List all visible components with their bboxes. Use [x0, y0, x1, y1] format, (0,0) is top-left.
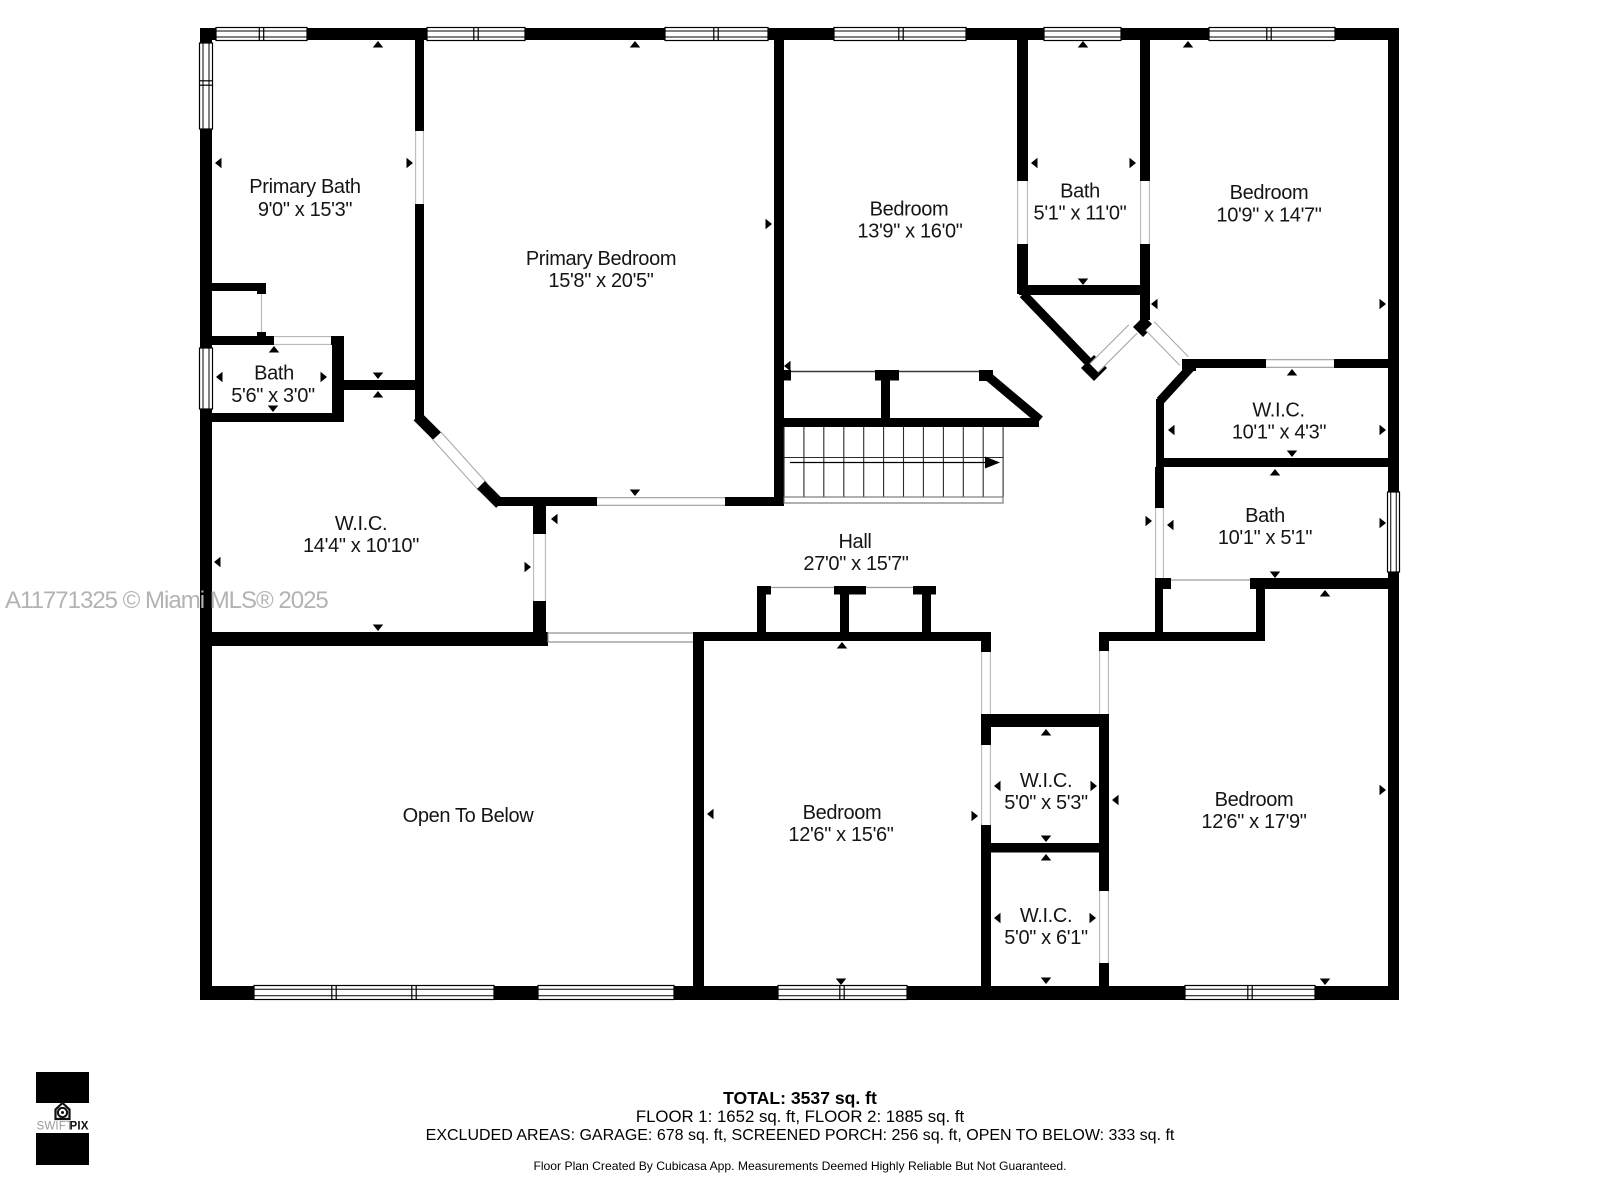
svg-text:Bedroom: Bedroom: [1215, 789, 1294, 811]
svg-text:W.I.C.: W.I.C.: [335, 513, 387, 535]
svg-text:Bedroom: Bedroom: [803, 802, 882, 824]
svg-text:10'1" x 5'1": 10'1" x 5'1": [1218, 527, 1313, 549]
svg-text:W.I.C.: W.I.C.: [1020, 770, 1072, 792]
svg-text:FLOOR 1: 1652 sq. ft, FLOOR 2:: FLOOR 1: 1652 sq. ft, FLOOR 2: 1885 sq. …: [636, 1107, 965, 1126]
svg-text:Floor Plan Created By Cubicasa: Floor Plan Created By Cubicasa App. Meas…: [533, 1159, 1066, 1173]
svg-text:5'1" x 11'0": 5'1" x 11'0": [1034, 203, 1127, 225]
svg-text:Bedroom: Bedroom: [1230, 182, 1309, 204]
svg-text:Primary Bedroom: Primary Bedroom: [526, 248, 676, 270]
svg-text:27'0" x 15'7": 27'0" x 15'7": [803, 553, 908, 575]
svg-text:Bedroom: Bedroom: [870, 199, 949, 221]
svg-text:Primary Bath: Primary Bath: [249, 176, 360, 198]
svg-text:5'6" x 3'0": 5'6" x 3'0": [231, 385, 315, 407]
svg-text:10'9" x 14'7": 10'9" x 14'7": [1216, 205, 1321, 227]
svg-text:5'0" x 6'1": 5'0" x 6'1": [1004, 927, 1088, 949]
svg-text:Bath: Bath: [1245, 505, 1285, 527]
svg-text:SWIFT: SWIFT: [37, 1121, 74, 1133]
svg-text:W.I.C.: W.I.C.: [1020, 905, 1072, 927]
svg-text:Bath: Bath: [1060, 181, 1100, 203]
svg-text:A11771325 © Miami MLS® 2025: A11771325 © Miami MLS® 2025: [5, 587, 328, 614]
svg-text:9'0" x 15'3": 9'0" x 15'3": [258, 199, 353, 221]
svg-text:Bath: Bath: [254, 363, 294, 385]
svg-text:Hall: Hall: [838, 531, 871, 553]
svg-text:12'6" x 17'9": 12'6" x 17'9": [1201, 811, 1306, 833]
svg-text:5'0" x 5'3": 5'0" x 5'3": [1004, 792, 1088, 814]
svg-text:15'8" x 20'5": 15'8" x 20'5": [548, 270, 653, 292]
svg-text:TOTAL: 3537 sq. ft: TOTAL: 3537 sq. ft: [723, 1088, 877, 1108]
svg-text:EXCLUDED AREAS: GARAGE: 678 sq: EXCLUDED AREAS: GARAGE: 678 sq. ft, SCRE…: [426, 1127, 1175, 1144]
svg-text:13'9" x 16'0": 13'9" x 16'0": [857, 221, 962, 243]
svg-text:PIX: PIX: [70, 1121, 89, 1133]
svg-text:14'4" x 10'10": 14'4" x 10'10": [303, 535, 419, 557]
svg-text:Open To Below: Open To Below: [403, 805, 535, 827]
svg-text:W.I.C.: W.I.C.: [1252, 400, 1304, 422]
svg-text:10'1" x 4'3": 10'1" x 4'3": [1232, 422, 1327, 444]
svg-text:12'6" x 15'6": 12'6" x 15'6": [788, 824, 893, 846]
